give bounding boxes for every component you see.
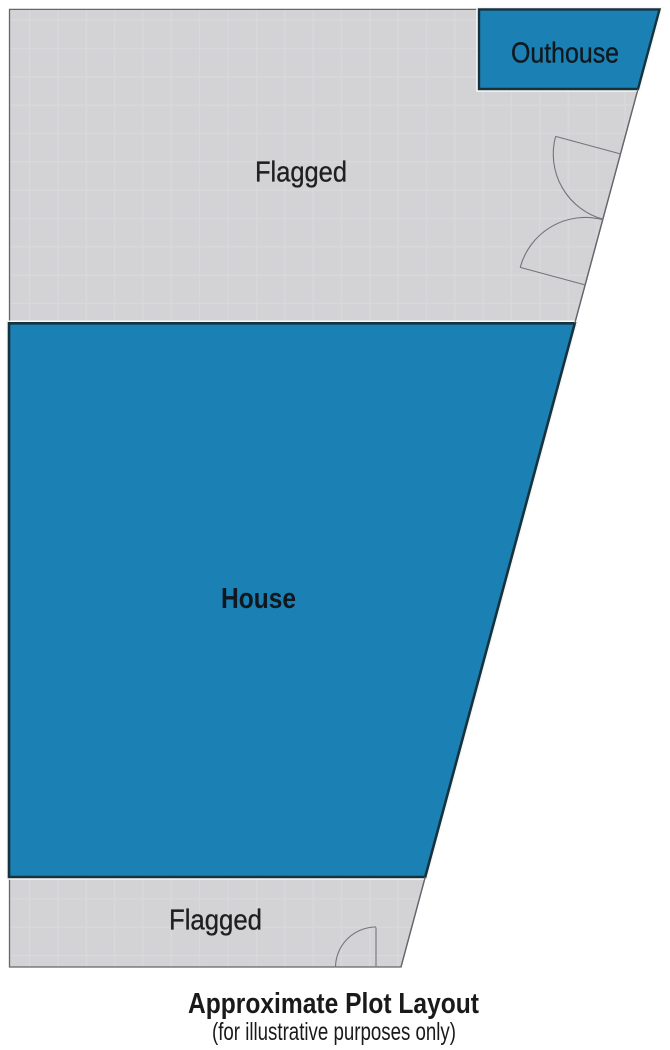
svg-text:Flagged: Flagged xyxy=(169,905,262,937)
svg-text:Flagged: Flagged xyxy=(255,157,347,189)
svg-text:Approximate Plot Layout: Approximate Plot Layout xyxy=(188,988,479,1020)
svg-text:House: House xyxy=(221,583,296,615)
svg-text:Outhouse: Outhouse xyxy=(511,38,619,70)
svg-text:(for illustrative purposes onl: (for illustrative purposes only) xyxy=(212,1018,456,1046)
